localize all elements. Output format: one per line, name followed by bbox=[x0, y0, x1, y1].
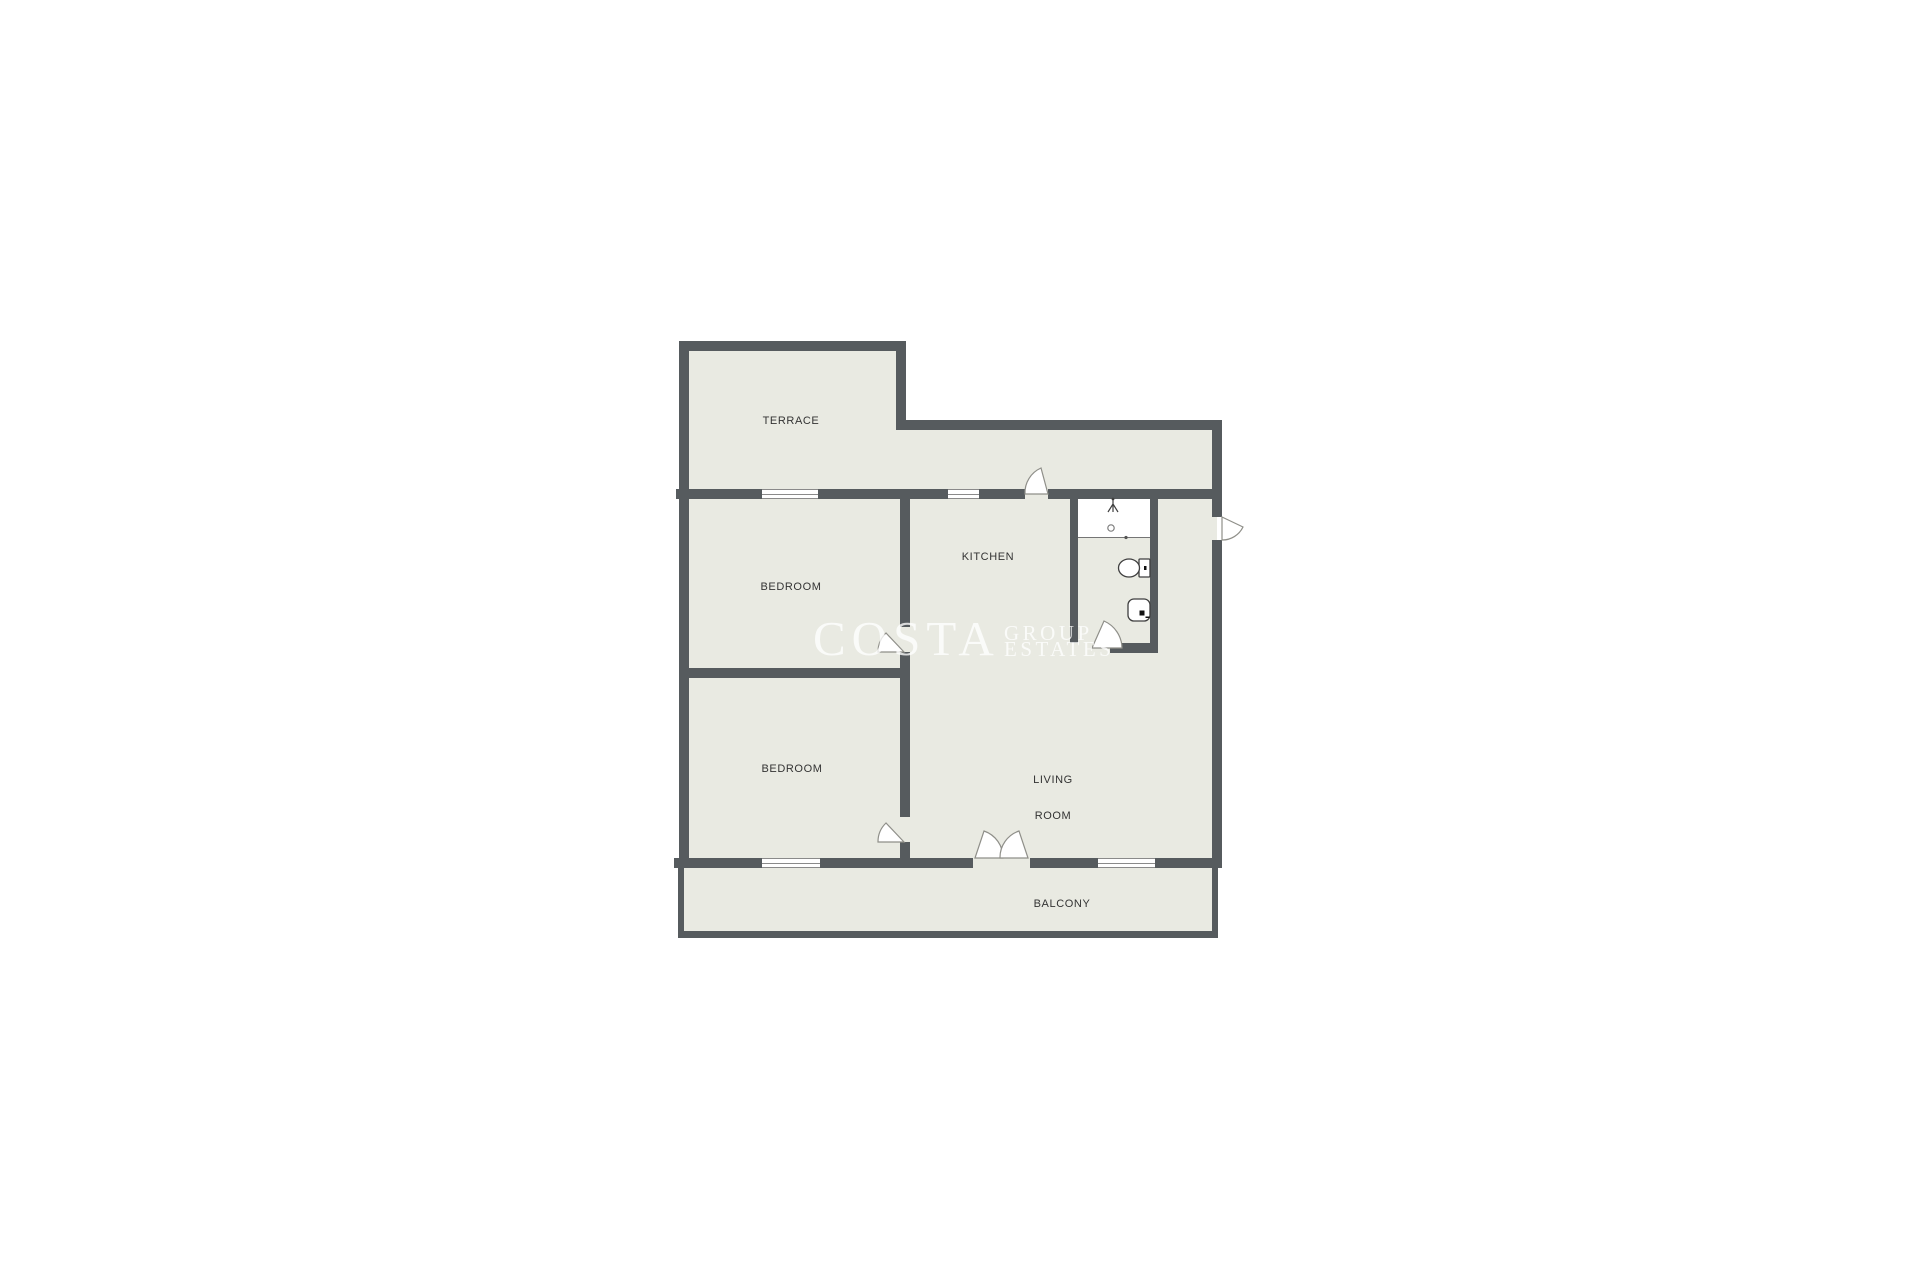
shower-head-icon bbox=[1108, 498, 1118, 512]
floor-plan: COSTA GROUP ESTATES TERRACE BEDROOM BEDR… bbox=[0, 0, 1920, 1280]
room-label-terrace: TERRACE bbox=[740, 415, 842, 427]
watermark-sub-line2: ESTATES bbox=[1004, 642, 1114, 658]
room-label-balcony: BALCONY bbox=[1012, 898, 1112, 910]
terrace-door-arc bbox=[1025, 468, 1048, 494]
room-label-living-line2: ROOM bbox=[1013, 810, 1093, 822]
shower-faucet-dot bbox=[1124, 536, 1127, 539]
room-label-bedroom-bottom: BEDROOM bbox=[742, 763, 842, 775]
room-label-living-room: LIVING ROOM bbox=[1013, 750, 1093, 846]
watermark-brand: COSTA bbox=[813, 616, 1000, 662]
sink-icon bbox=[1128, 599, 1150, 621]
entrance-door-arc bbox=[1222, 517, 1243, 540]
toilet-icon bbox=[1119, 559, 1151, 577]
shower-drain-icon bbox=[1108, 525, 1114, 531]
watermark-sub: GROUP ESTATES bbox=[1004, 626, 1114, 657]
bedroom-bottom-door-arc bbox=[878, 823, 904, 842]
room-label-bedroom-top: BEDROOM bbox=[741, 581, 841, 593]
room-label-living-line1: LIVING bbox=[1013, 774, 1093, 786]
room-label-kitchen: KITCHEN bbox=[938, 551, 1038, 563]
